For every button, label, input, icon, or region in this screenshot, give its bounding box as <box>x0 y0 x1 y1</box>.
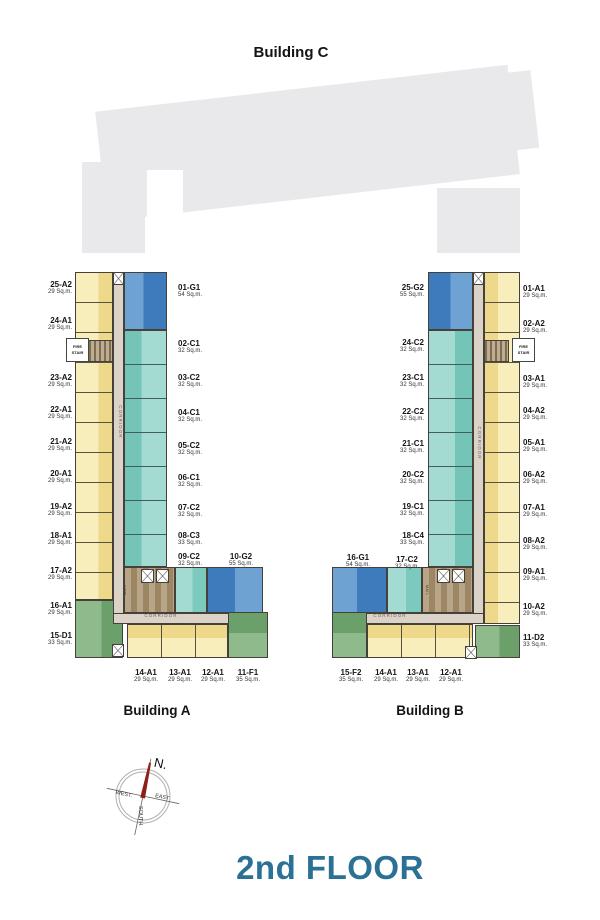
unit-label: 15-F235 Sq.m. <box>331 668 371 684</box>
unit-area: 29 Sq.m. <box>431 677 471 684</box>
compass-needle <box>140 762 152 798</box>
compass-south-label: SOUTH. <box>137 806 143 827</box>
building-b-bottom-labels: 15-F235 Sq.m.14-A129 Sq.m.13-A129 Sq.m.1… <box>0 0 600 920</box>
unit-label: 12-A129 Sq.m. <box>431 668 471 684</box>
building-b-title: Building B <box>350 703 510 718</box>
unit-code: 12-A1 <box>431 668 471 677</box>
compass-north-label: N. <box>153 755 169 772</box>
floor-plan-page: Building C FIRE STAIR CORRIDOR CORRIDOR … <box>0 0 600 920</box>
compass-west-label: WEST. <box>115 790 133 799</box>
building-a-title: Building A <box>77 703 237 718</box>
compass-east-label: EAST <box>154 793 170 802</box>
compass-rose: N. WEST. EAST SOUTH. <box>103 752 193 850</box>
unit-area: 35 Sq.m. <box>331 677 371 684</box>
floor-title: 2nd FLOOR <box>225 849 435 887</box>
unit-code: 15-F2 <box>331 668 371 677</box>
